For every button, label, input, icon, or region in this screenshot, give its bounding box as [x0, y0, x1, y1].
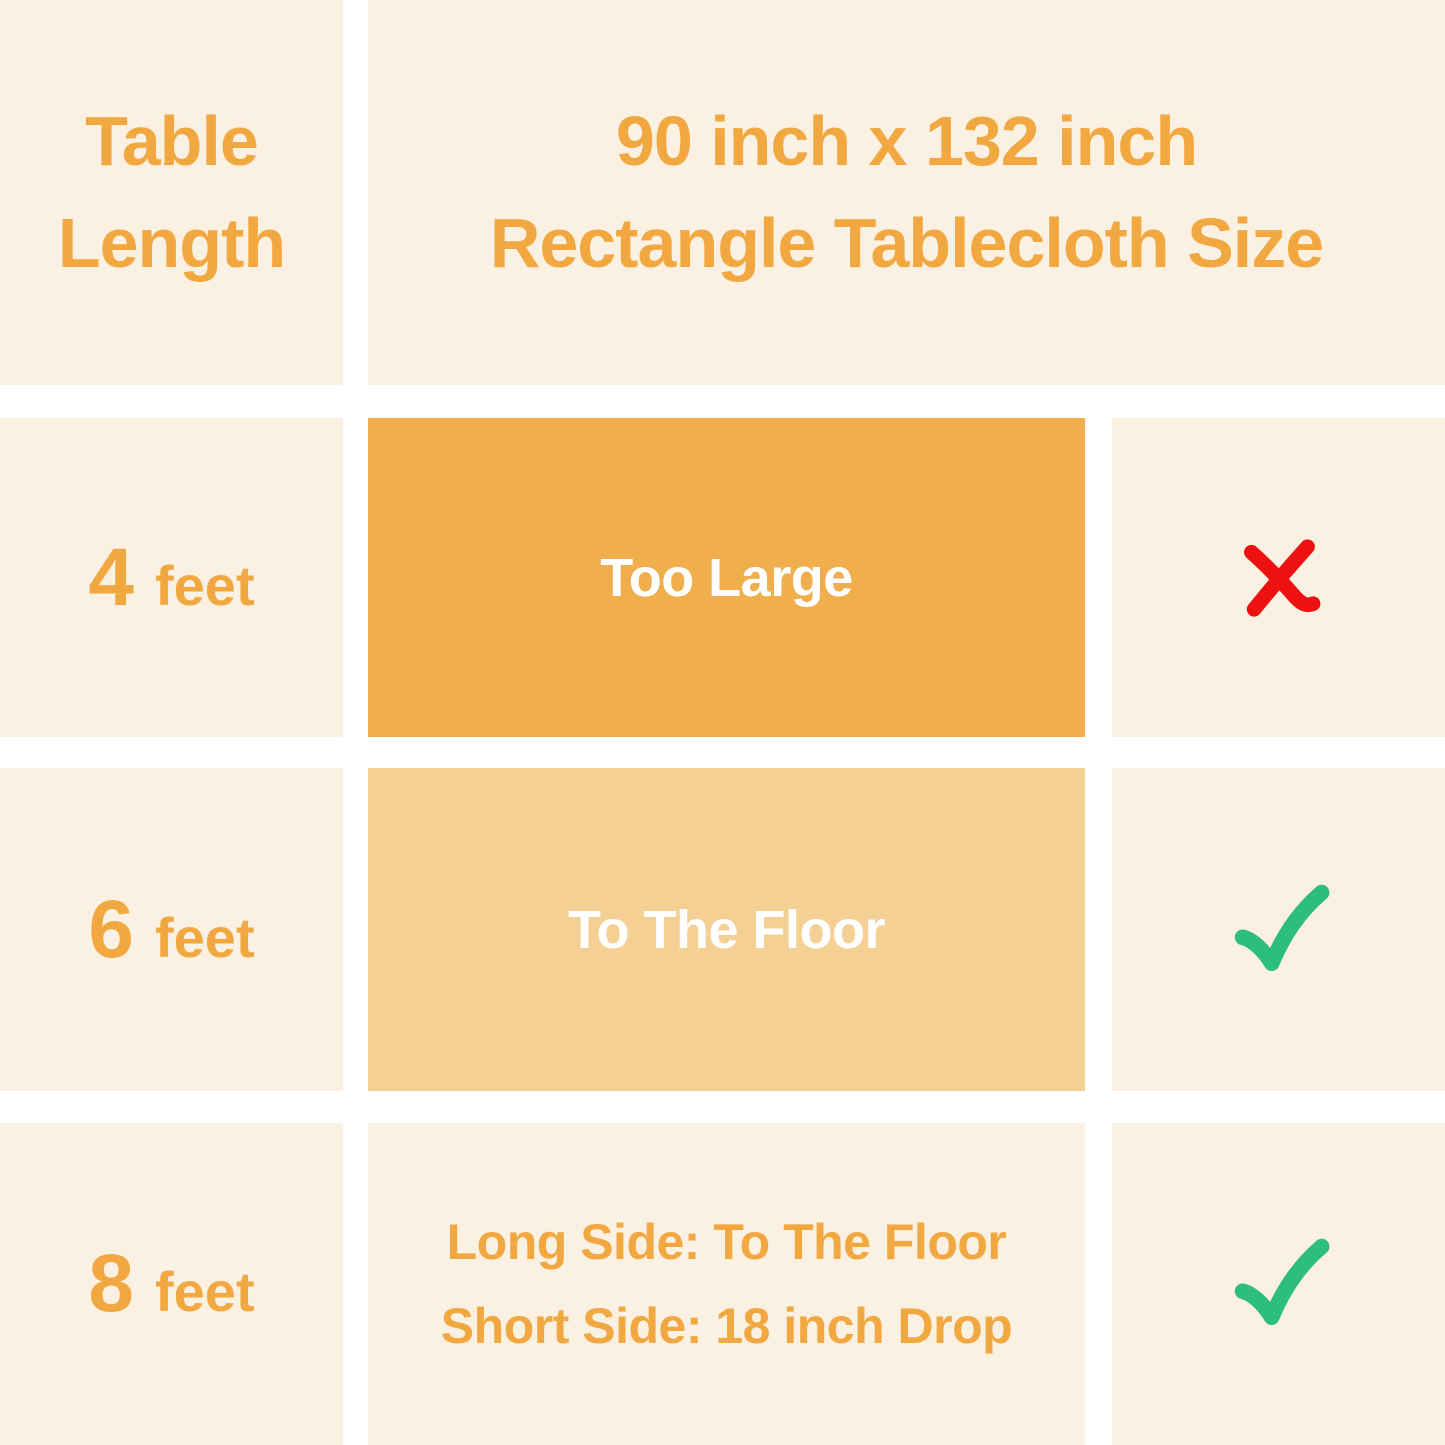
length-unit: feet	[155, 553, 255, 618]
length-label: 4 feet	[88, 531, 254, 625]
length-cell-8ft: 8 feet	[0, 1123, 343, 1445]
length-unit: feet	[155, 905, 255, 970]
fit-cell-6ft: To The Floor	[368, 768, 1085, 1091]
fit-cell-4ft: Too Large	[368, 418, 1085, 737]
length-label: 6 feet	[88, 883, 254, 977]
length-value: 6	[88, 883, 133, 977]
length-unit: feet	[155, 1259, 255, 1324]
length-cell-6ft: 6 feet	[0, 768, 343, 1091]
length-value: 4	[88, 531, 133, 625]
header-cell-tablecloth-size: 90 inch x 132 inch Rectangle Tablecloth …	[368, 0, 1445, 385]
tablecloth-fit-table: Table Length 90 inch x 132 inch Rectangl…	[0, 0, 1445, 1445]
tablecloth-size-column-title: 90 inch x 132 inch Rectangle Tablecloth …	[490, 91, 1323, 294]
verdict-cell-8ft	[1112, 1123, 1445, 1445]
fit-cell-8ft: Long Side: To The Floor Short Side: 18 i…	[368, 1123, 1085, 1445]
verdict-cell-4ft	[1112, 418, 1445, 737]
green-check-icon	[1227, 1232, 1331, 1336]
fit-label: Too Large	[600, 547, 853, 609]
length-value: 8	[88, 1237, 133, 1331]
fit-label: To The Floor	[568, 899, 885, 961]
length-cell-4ft: 4 feet	[0, 418, 343, 737]
verdict-cell-6ft	[1112, 768, 1445, 1091]
red-cross-icon	[1233, 532, 1325, 624]
table-length-column-title: Table Length	[58, 91, 285, 294]
header-cell-table-length: Table Length	[0, 0, 343, 385]
length-label: 8 feet	[88, 1237, 254, 1331]
fit-label: Long Side: To The Floor Short Side: 18 i…	[441, 1200, 1012, 1368]
green-check-icon	[1227, 878, 1331, 982]
